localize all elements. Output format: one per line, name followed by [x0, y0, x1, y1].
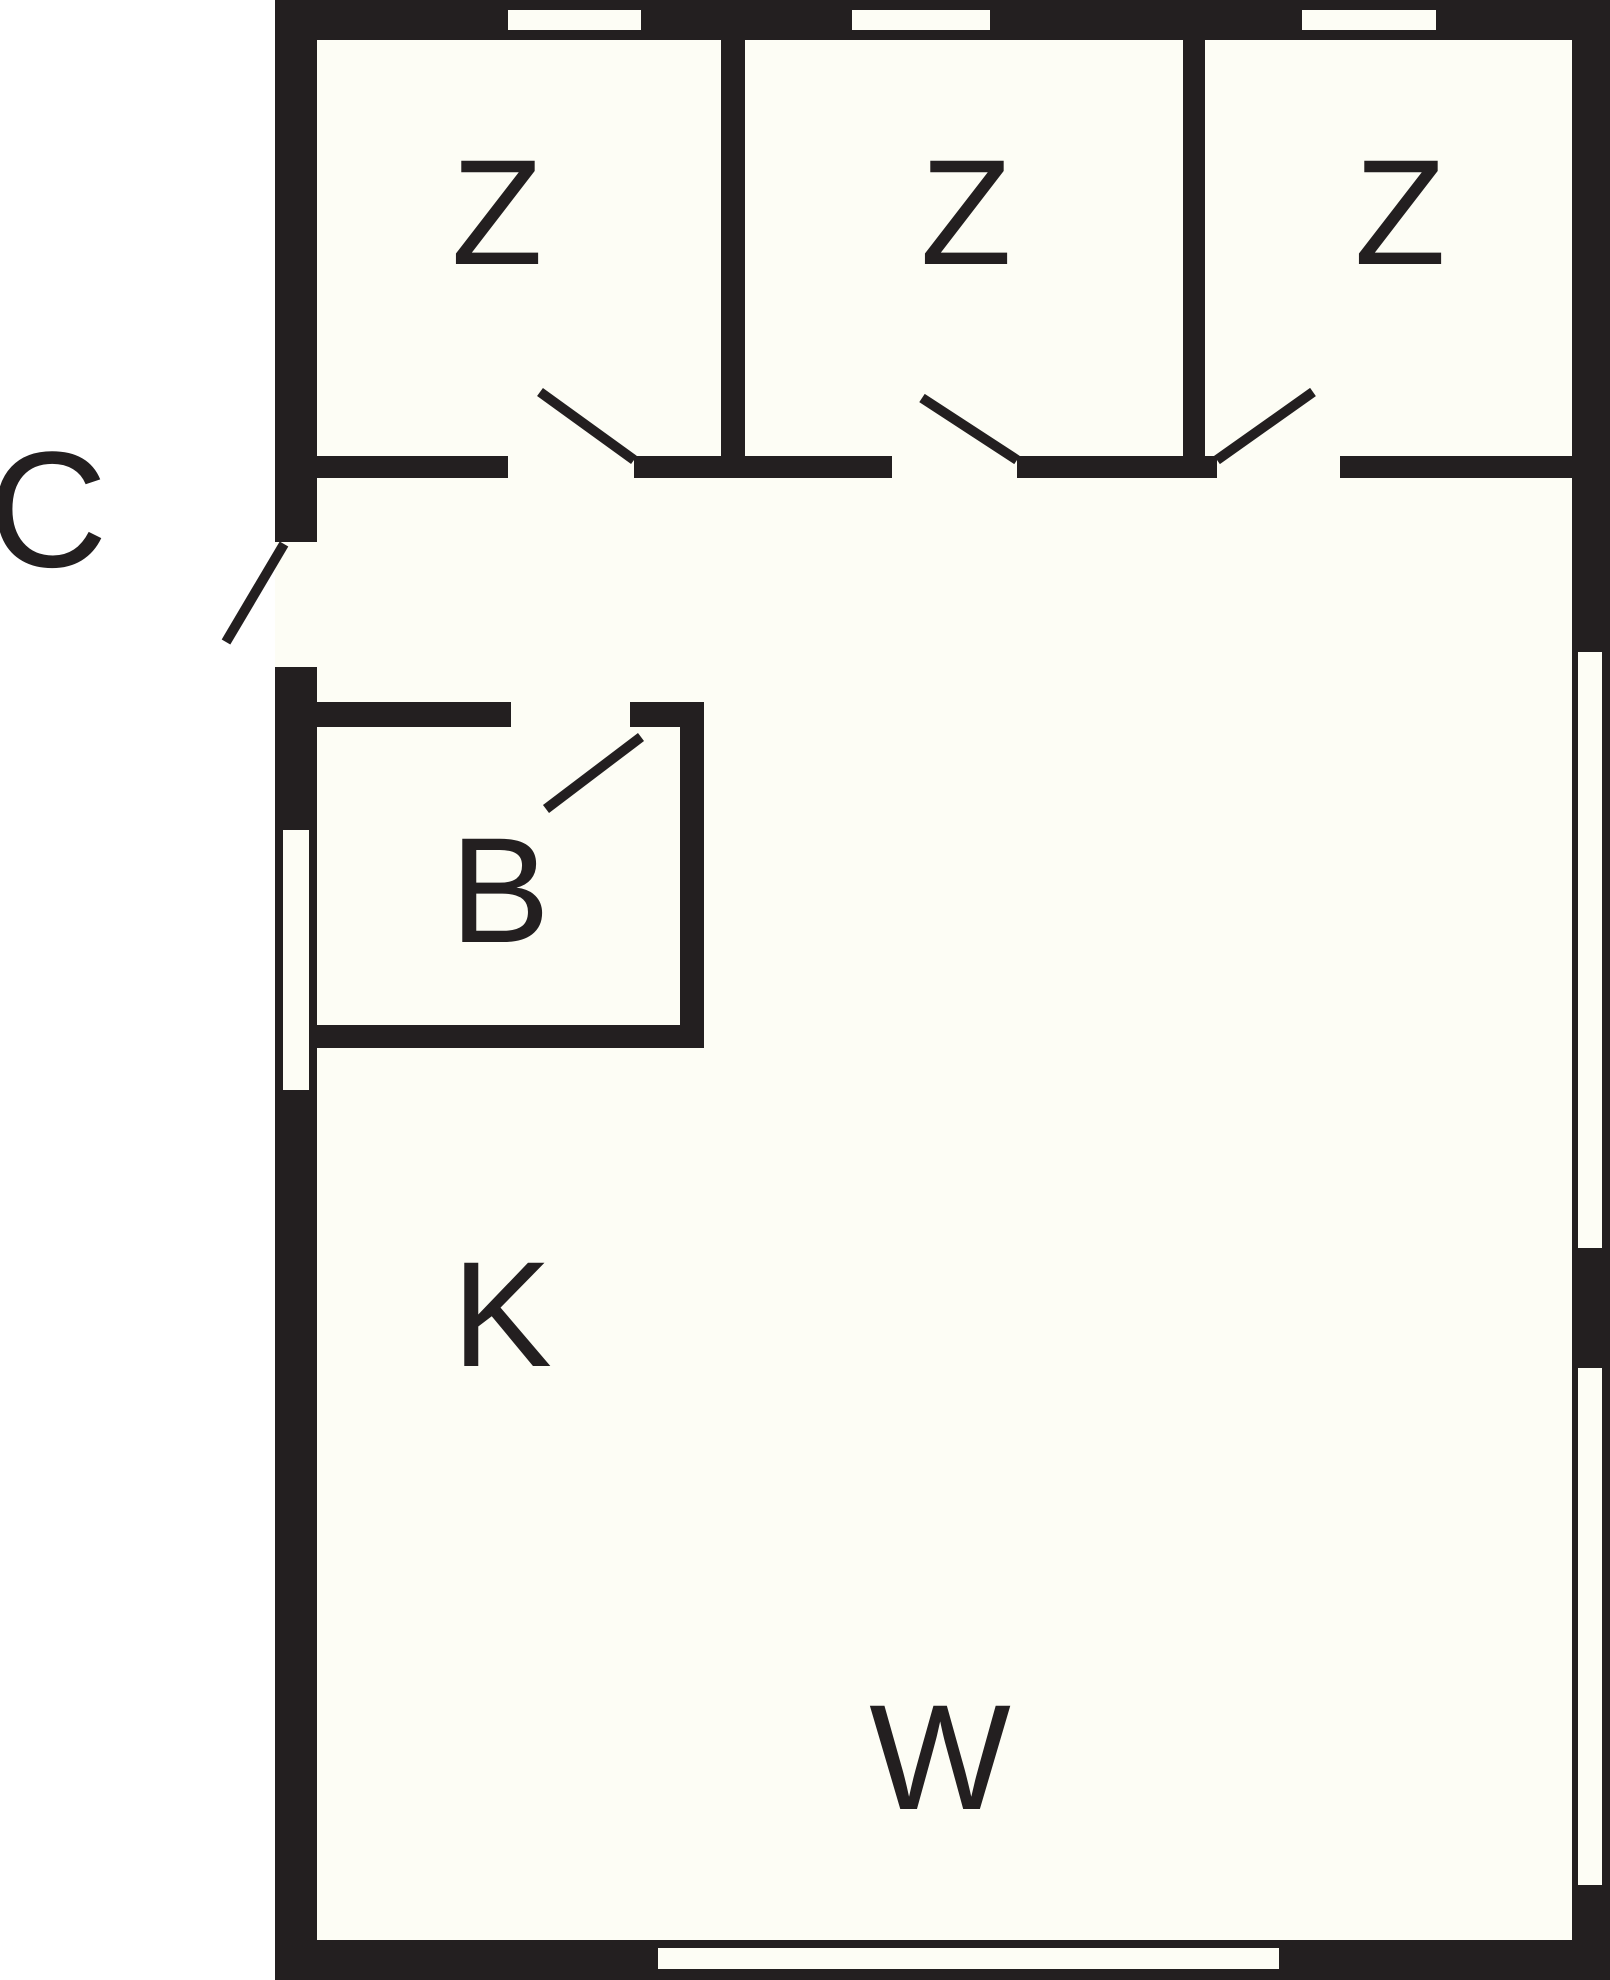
door-swing-bedroom-2: [922, 398, 1017, 460]
door-swing-bedroom-1: [540, 392, 634, 460]
label-kitchen: K: [452, 1239, 552, 1389]
door-swing-bathroom: [546, 737, 641, 809]
door-swing-bedroom-3: [1217, 392, 1313, 460]
label-bathroom: B: [450, 815, 550, 965]
label-bedroom-1: Z: [451, 137, 543, 287]
door-swing-entry: [226, 544, 284, 642]
label-living-room: W: [869, 1682, 1011, 1832]
floor-plan: C Z Z Z B K W: [0, 0, 1610, 1980]
door-swing-overlay: [0, 0, 1610, 1980]
label-outside-c: C: [0, 428, 108, 593]
label-bedroom-2: Z: [920, 137, 1012, 287]
label-bedroom-3: Z: [1354, 137, 1446, 287]
